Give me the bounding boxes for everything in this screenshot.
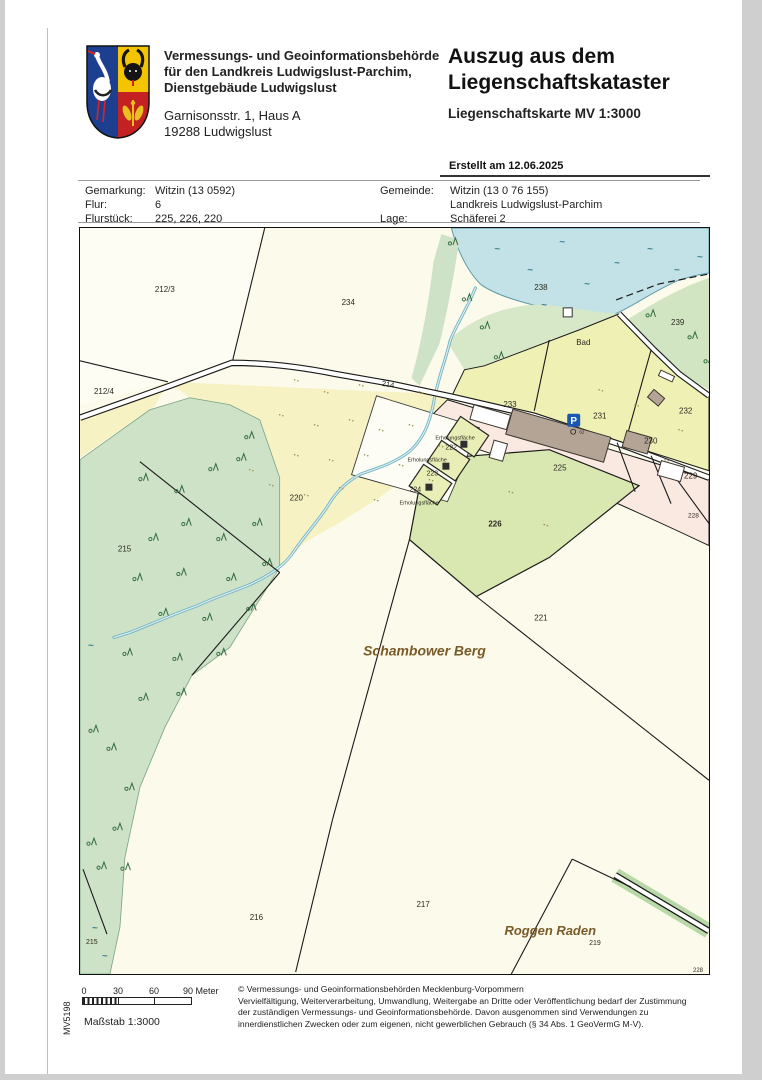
svg-text:224: 224 <box>409 487 421 494</box>
info-value: Landkreis Ludwigslust-Parchim <box>450 198 700 212</box>
svg-text:221: 221 <box>534 613 548 622</box>
svg-text:215: 215 <box>86 939 98 946</box>
scale-bar-segment <box>119 998 155 1004</box>
created-date: Erstellt am 12.06.2025 <box>449 160 563 172</box>
svg-text:~: ~ <box>92 923 98 934</box>
header-rule <box>440 175 710 177</box>
svg-text:223: 223 <box>426 471 438 478</box>
svg-text:~: ~ <box>494 244 500 255</box>
svg-text:P: P <box>570 416 577 427</box>
scale-bar <box>82 997 192 1005</box>
svg-text:219: 219 <box>589 940 601 947</box>
svg-text:Schambower Berg: Schambower Berg <box>363 642 486 658</box>
svg-text:228: 228 <box>688 513 699 520</box>
svg-text:212/3: 212/3 <box>155 285 176 294</box>
copyright-block: © Vermessungs- und Geoinformationsbehörd… <box>238 984 716 1030</box>
scale-end-label: 90 Meter <box>183 986 219 996</box>
svg-text:232: 232 <box>679 407 693 416</box>
table-rule-top <box>78 180 700 181</box>
authority-line: Dienstgebäude Ludwigslust <box>164 80 444 96</box>
cadastral-map: P ~~~~~~~~~~~~ 212/3234238239Bad212/4214… <box>79 227 710 975</box>
info-label: Gemeinde: <box>380 184 450 198</box>
page-title: Auszug aus dem Liegenschaftskataster <box>448 44 718 96</box>
parcel-info-table: Gemarkung: Witzin (13 0592) Gemeinde: Wi… <box>85 184 700 226</box>
title-block: Auszug aus dem Liegenschaftskataster Lie… <box>448 44 718 121</box>
svg-text:~: ~ <box>584 279 590 290</box>
svg-text:~: ~ <box>697 252 703 263</box>
scale-bar-segment <box>155 998 191 1004</box>
svg-text:215: 215 <box>118 545 132 554</box>
info-label <box>380 198 450 212</box>
svg-text:220: 220 <box>290 494 304 503</box>
title-line: Liegenschaftskataster <box>448 70 718 96</box>
svg-text:Erholungsfläche: Erholungsfläche <box>399 501 438 507</box>
svg-text:212/4: 212/4 <box>94 387 115 396</box>
info-value: Witzin (13 0592) <box>155 184 380 198</box>
svg-text:216: 216 <box>250 913 264 922</box>
copyright-line: innerdienstlichen Zwecken oder zum eigen… <box>238 1019 716 1031</box>
info-value: 225, 226, 220 <box>155 212 380 226</box>
svg-text:238: 238 <box>534 283 548 292</box>
info-value: Schäferei 2 <box>450 212 700 226</box>
scale-text: Maßstab 1:3000 <box>84 1016 160 1028</box>
info-value: Witzin (13 0 76 155) <box>450 184 700 198</box>
title-line: Auszug aus dem <box>448 44 718 70</box>
svg-text:230: 230 <box>644 437 658 446</box>
scale-tick-0: 0 <box>81 986 86 996</box>
svg-text:217: 217 <box>416 900 430 909</box>
svg-text:~: ~ <box>541 300 547 311</box>
info-value: 6 <box>155 198 380 212</box>
address-line: 19288 Ludwigslust <box>164 124 444 140</box>
authority-block: Vermessungs- und Geoinformationsbehörde … <box>164 48 444 140</box>
svg-text:225: 225 <box>553 464 567 473</box>
copyright-line: der zuständigen Vermessungs- und Geoinfo… <box>238 1007 716 1019</box>
coat-of-arms-svg <box>85 44 151 140</box>
svg-text:234: 234 <box>342 298 356 307</box>
scale-bar-segment <box>83 998 119 1004</box>
svg-text:~: ~ <box>102 951 108 962</box>
svg-text:222: 222 <box>445 445 457 452</box>
address-line: Garnisonsstr. 1, Haus A <box>164 108 444 124</box>
coat-of-arms <box>85 44 151 140</box>
svg-text:Roggen Raden: Roggen Raden <box>505 923 597 938</box>
svg-text:226: 226 <box>488 520 502 529</box>
authority-line: für den Landkreis Ludwigslust-Parchim, <box>164 64 444 80</box>
map-subtitle: Liegenschaftskarte MV 1:3000 <box>448 106 718 121</box>
copyright-line: Vervielfältigung, Weiterverarbeitung, Um… <box>238 996 716 1008</box>
sheet-code: MV5198 <box>62 983 72 1035</box>
svg-text:Erholungsfläche: Erholungsfläche <box>407 458 446 464</box>
svg-text:229: 229 <box>684 472 698 481</box>
svg-text:233: 233 <box>503 400 517 409</box>
svg-text:~: ~ <box>647 244 653 255</box>
svg-text:~: ~ <box>674 265 680 276</box>
svg-text:62: 62 <box>579 430 584 435</box>
info-label: Flurstück: <box>85 212 155 226</box>
svg-text:214: 214 <box>381 379 395 390</box>
copyright-line: © Vermessungs- und Geoinformationsbehörd… <box>238 984 716 996</box>
scan-fold-line <box>47 28 48 1074</box>
svg-text:239: 239 <box>671 318 685 327</box>
scan-edge-bottom <box>0 1074 762 1080</box>
svg-text:228: 228 <box>693 968 704 974</box>
svg-text:Bad: Bad <box>576 338 590 347</box>
info-label: Gemarkung: <box>85 184 155 198</box>
scan-edge-left <box>0 0 5 1080</box>
cadastral-extract-page: Vermessungs- und Geoinformationsbehörde … <box>0 0 762 1080</box>
info-label: Lage: <box>380 212 450 226</box>
svg-text:~: ~ <box>88 640 94 651</box>
map-svg: P ~~~~~~~~~~~~ 212/3234238239Bad212/4214… <box>80 228 709 974</box>
svg-text:~: ~ <box>614 258 620 269</box>
scale-tick-60: 60 <box>149 986 159 996</box>
authority-line: Vermessungs- und Geoinformationsbehörde <box>164 48 444 64</box>
info-label: Flur: <box>85 198 155 212</box>
svg-text:Erholungsfläche: Erholungsfläche <box>435 436 474 442</box>
svg-text:231: 231 <box>593 412 607 421</box>
svg-text:~: ~ <box>559 237 565 248</box>
scan-edge-right <box>742 0 762 1080</box>
svg-text:~: ~ <box>527 265 533 276</box>
scale-tick-30: 30 <box>113 986 123 996</box>
